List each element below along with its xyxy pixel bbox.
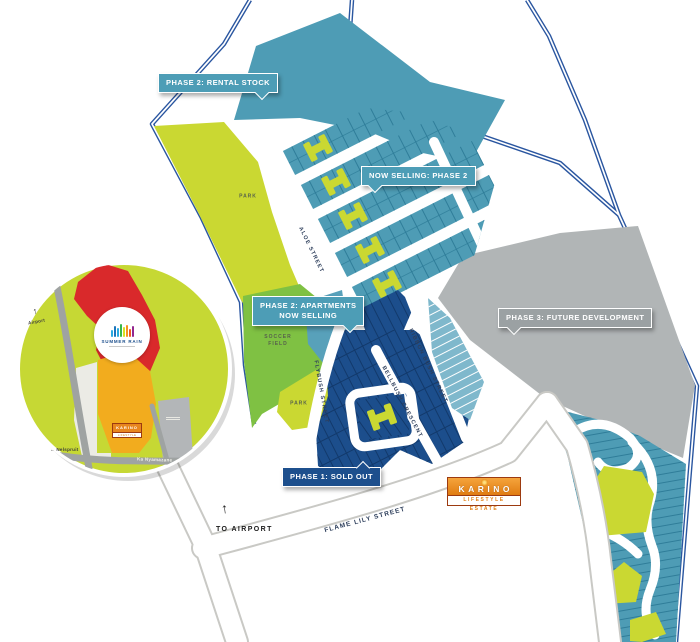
inset-small-marker: [166, 416, 180, 421]
phase2-rental-bubble: PHASE 2: RENTAL STOCK: [158, 73, 278, 93]
inset-nelspruit-label: ← Nelspruit: [50, 447, 79, 452]
park-upper-label: PARK: [239, 194, 257, 201]
phase1-sold-bubble: PHASE 1: SOLD OUT: [282, 467, 381, 487]
inset-karino-name: KARINO: [112, 423, 142, 433]
summer-rain-name: SUMMER RAIN: [101, 339, 142, 344]
phase2-apartments-bubble: PHASE 2: APARTMENTS NOW SELLING: [252, 296, 364, 326]
left-arrow-icon: ←: [50, 447, 55, 452]
inset-karino-logo: KARINO LIFESTYLE ESTATE: [112, 423, 142, 438]
inset-nelspruit-text: Nelspruit: [56, 447, 78, 452]
inset-karino-tagline: LIFESTYLE ESTATE: [112, 433, 142, 438]
now-selling-label: NOW SELLING: PHASE 2: [369, 171, 468, 180]
soccer-field-label-line2: FIELD: [264, 341, 291, 348]
now-selling-bubble: NOW SELLING: PHASE 2: [361, 166, 476, 186]
estate-masterplan-map: PHASE 2: RENTAL STOCK NOW SELLING: PHASE…: [0, 0, 700, 642]
phase2-rental-label: PHASE 2: RENTAL STOCK: [166, 78, 270, 87]
phase3-future-label: PHASE 3: FUTURE DEVELOPMENT: [506, 313, 644, 322]
phase2-apartments-label-line1: PHASE 2: APARTMENTS: [260, 301, 356, 311]
karino-logo: KARINO LIFESTYLE ESTATE: [447, 477, 521, 506]
phase2-apartments-label-line2: NOW SELLING: [260, 311, 356, 321]
soccer-field-label: SOCCER FIELD: [264, 334, 291, 348]
karino-logo-band: KARINO: [447, 477, 521, 496]
sun-icon: [481, 479, 488, 486]
summer-rain-rule: [109, 346, 135, 347]
rain-bars-icon: [111, 323, 134, 337]
karino-logo-tagline: LIFESTYLE ESTATE: [447, 496, 521, 506]
summer-rain-logo: SUMMER RAIN: [94, 307, 150, 363]
soccer-field-label-line1: SOCCER: [264, 334, 291, 341]
phase3-future-bubble: PHASE 3: FUTURE DEVELOPMENT: [498, 308, 652, 328]
park-lower-label: PARK: [290, 401, 308, 408]
to-airport-label: TO AIRPORT: [216, 526, 273, 533]
phase1-sold-label: PHASE 1: SOLD OUT: [290, 472, 373, 481]
